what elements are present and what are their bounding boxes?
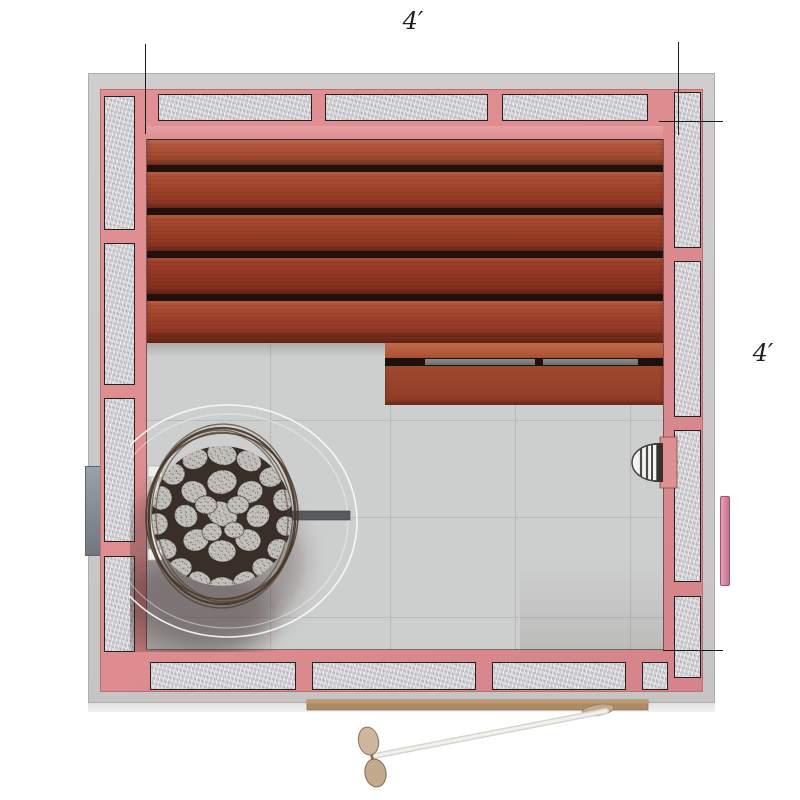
door-handle-knob-outer [356,725,381,756]
lower-bench-rail-right [543,359,638,365]
exterior-handle-bar [720,496,730,586]
sauna-floor-plan: 4′ 4′ [0,0,800,800]
dimension-extension-right-top [659,121,723,122]
bench-slat-5 [147,301,663,337]
door-assembly [290,694,690,796]
lower-bench-rail-left [425,359,535,365]
bench-slat-4 [147,258,663,294]
sauna-heater [130,390,390,652]
insulation-bay-bottom-1 [150,662,296,690]
dimension-label-top: 4′ [390,6,436,36]
insulation-bay-top-1 [158,94,312,121]
insulation-bay-top-3 [502,94,648,121]
wall-light-fixture [626,434,682,490]
dimension-extension-right-bottom [663,650,723,651]
floor-vignette [520,560,663,650]
dimension-extension-top-left [145,44,146,134]
door-glass-panel [374,711,606,756]
bench-slat-1 [147,140,663,165]
bench-slat-2 [147,172,663,208]
insulation-bay-left-2 [104,243,135,385]
door-handle-knob-inner [363,757,389,788]
top-wall-ledge [147,126,663,140]
lower-bench-step [385,343,663,405]
door-threshold-highlight [307,700,648,704]
insulation-bay-top-2 [325,94,488,121]
light-dome [632,444,657,481]
insulation-bay-right-4 [674,596,701,678]
dimension-label-right: 4′ [740,338,786,368]
exterior-junction-box [85,466,100,556]
insulation-bay-bottom-4 [642,662,668,690]
insulation-bay-right-2 [674,261,701,417]
insulation-bay-left-1 [104,96,135,230]
insulation-bay-bottom-2 [312,662,476,690]
insulation-bay-bottom-3 [492,662,626,690]
bench-slat-3 [147,215,663,251]
lower-bench-top-board [385,343,663,357]
upper-bench [147,140,663,343]
